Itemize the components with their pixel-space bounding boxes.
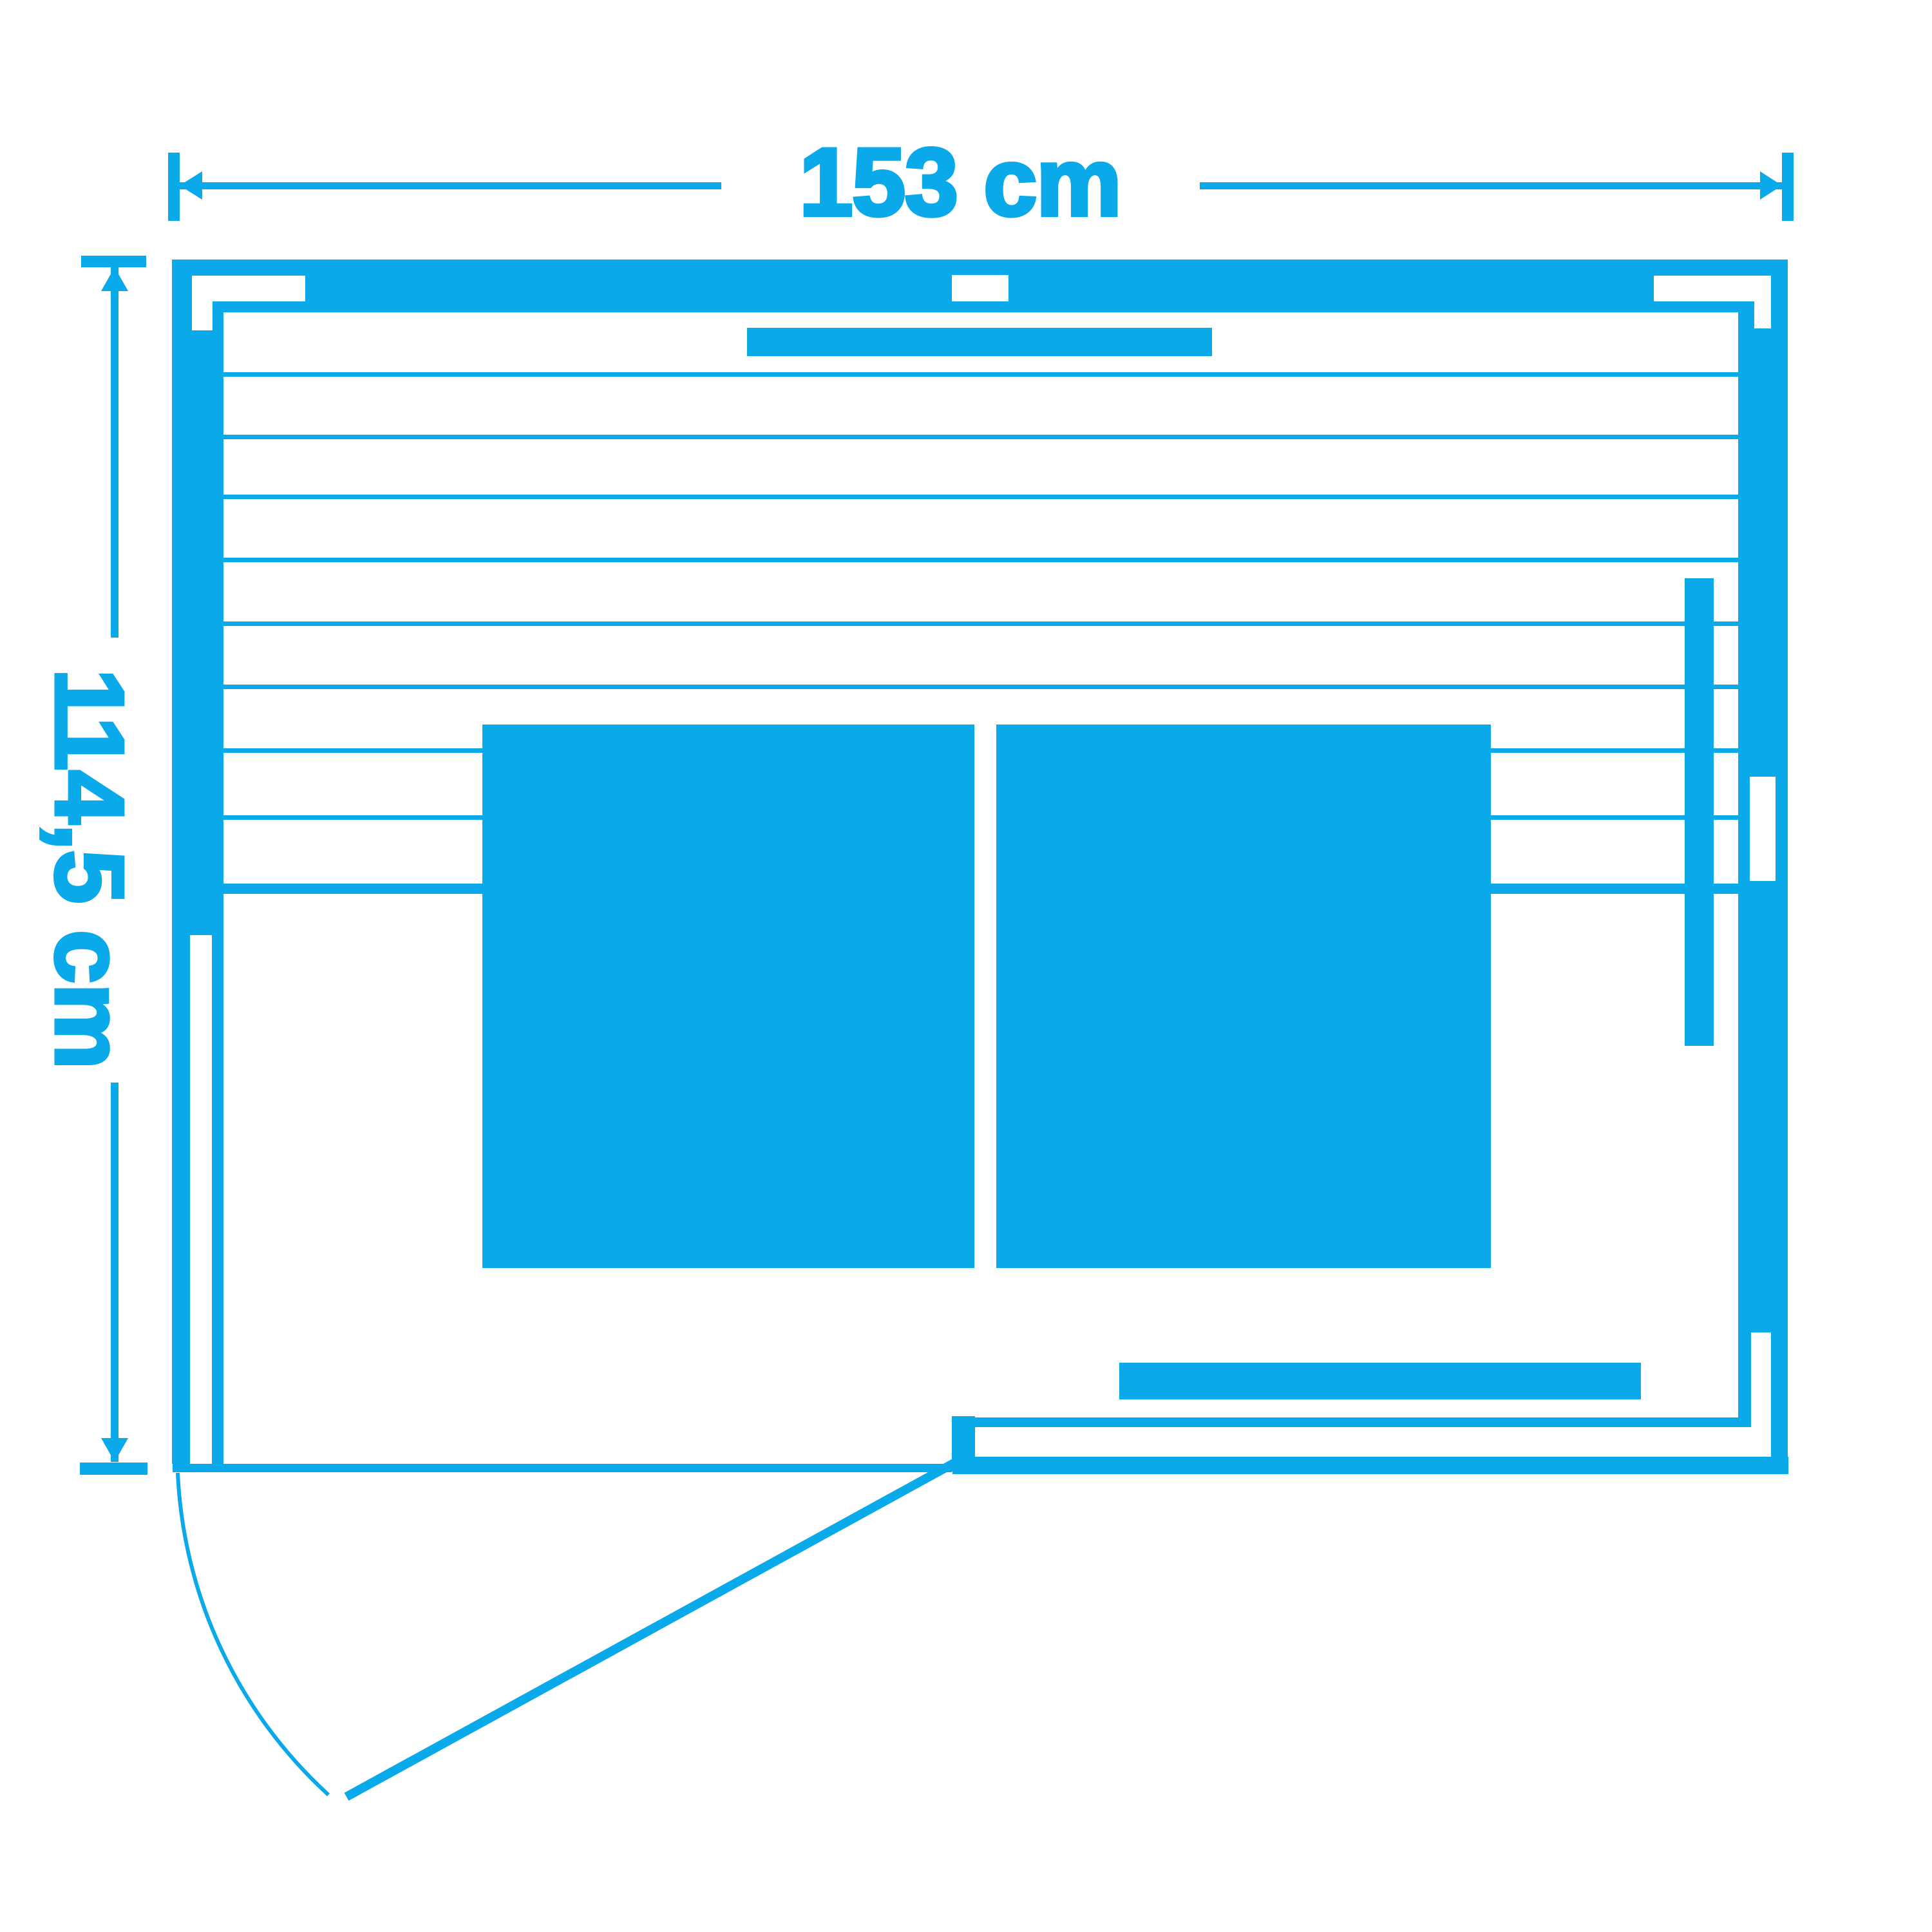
- svg-text:114,5 cm: 114,5 cm: [35, 668, 144, 1069]
- svg-text:153 cm: 153 cm: [799, 128, 1121, 236]
